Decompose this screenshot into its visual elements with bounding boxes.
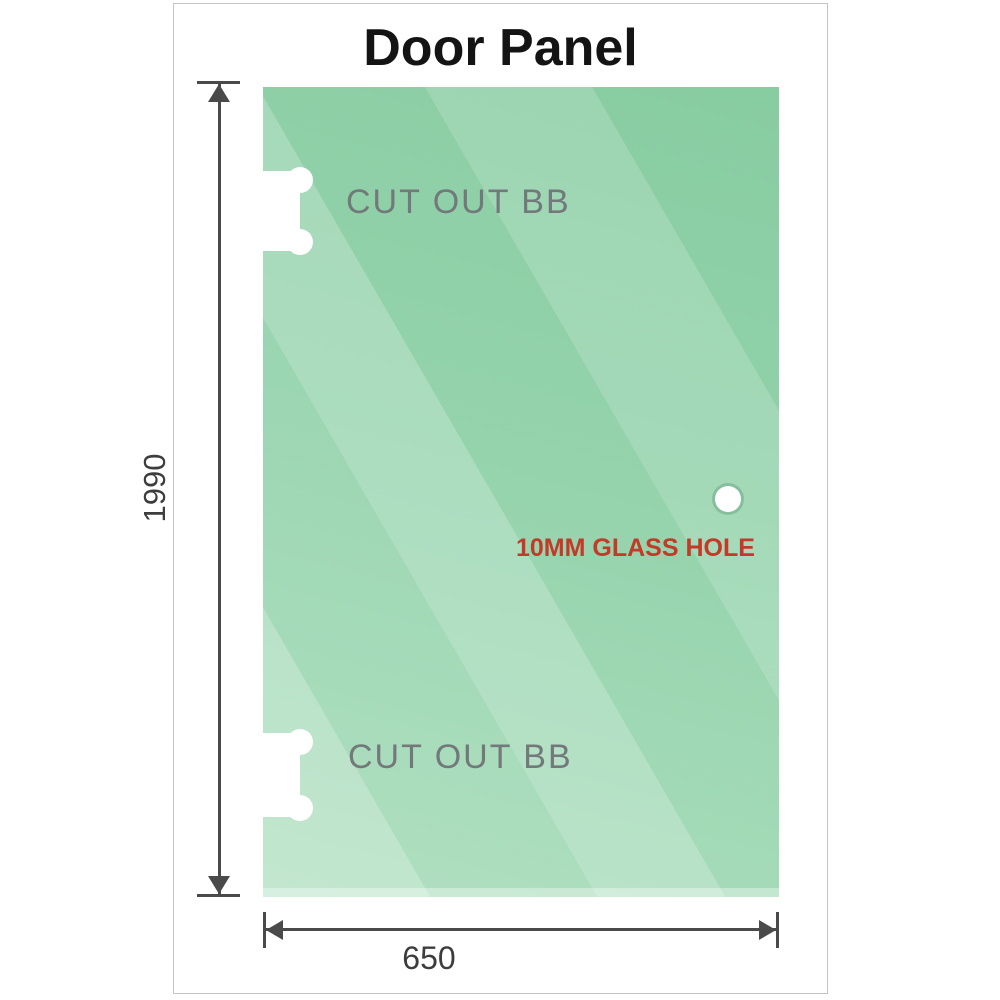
glass-panel: CUT OUT BB CUT OUT BB 10MM GLASS HOLE [263,87,779,897]
width-dimension-label: 650 [389,940,469,977]
dimension-line [266,928,776,931]
hinge-cutout-knob [287,229,313,255]
dimension-line [218,84,221,894]
dimension-cap [776,912,779,948]
cutout-bottom-label: CUT OUT BB [348,738,573,777]
cutout-top-label: CUT OUT BB [346,183,571,222]
height-dimension: 1990 [197,81,240,897]
glass-bottom-sheen [263,888,779,897]
arrow-up-icon [208,84,230,102]
hinge-cutout-knob [287,729,313,755]
arrow-down-icon [208,876,230,894]
diagram-title: Door Panel [174,18,827,78]
glass-hole-label: 10MM GLASS HOLE [516,534,755,563]
width-dimension: 650 [263,912,779,948]
arrow-right-icon [759,920,776,940]
dimension-cap [197,894,240,897]
hinge-cutout-top-icon [262,167,314,255]
arrow-left-icon [266,920,283,940]
diagram-frame: Door Panel CUT OUT BB CUT OUT BB 10MM GL… [173,3,828,994]
glass-hole-icon [715,486,741,512]
hinge-cutout-knob [287,167,313,193]
hinge-cutout-knob [287,795,313,821]
product-image-canvas: Door Panel CUT OUT BB CUT OUT BB 10MM GL… [0,0,1000,1000]
height-dimension-label: 1990 [137,446,173,530]
hinge-cutout-bottom-icon [262,729,314,821]
